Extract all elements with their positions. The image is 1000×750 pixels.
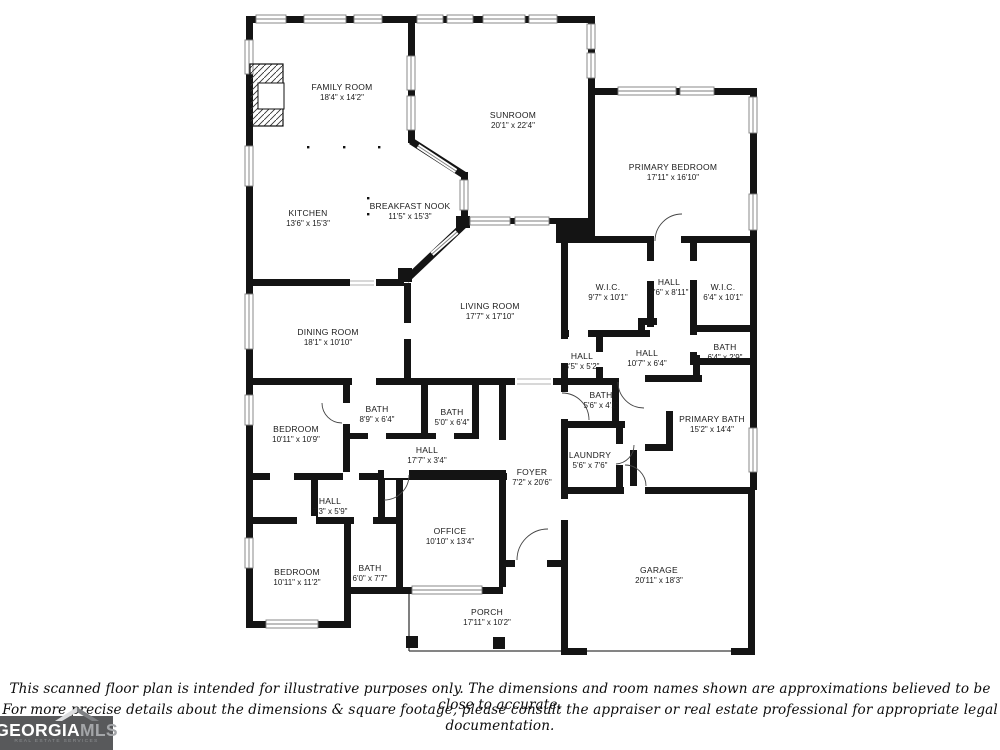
cased-openings (350, 281, 551, 384)
reference-dots (307, 146, 380, 215)
floorplan-drawing (0, 0, 1000, 750)
logo-brand-secondary: MLS (80, 720, 118, 740)
floorplan-page: FAMILY ROOM18'4" x 14'2"SUNROOM20'1" x 2… (0, 0, 1000, 750)
porch-outline (409, 594, 731, 651)
logo-brand-primary: GEORGIA (0, 720, 80, 740)
porch-posts (406, 636, 505, 649)
logo-brand: GEORGIAMLS (0, 723, 118, 738)
georgia-mls-logo: GEORGIAMLS REAL ESTATE SERVICES (0, 716, 113, 750)
diagonal-walls (406, 141, 465, 280)
logo-tagline: REAL ESTATE SERVICES (14, 739, 98, 744)
fireplace (250, 64, 284, 126)
roof-icon (54, 706, 100, 722)
walls (246, 16, 757, 655)
disclaimer-line-2: For more precise details about the dimen… (0, 702, 1000, 734)
